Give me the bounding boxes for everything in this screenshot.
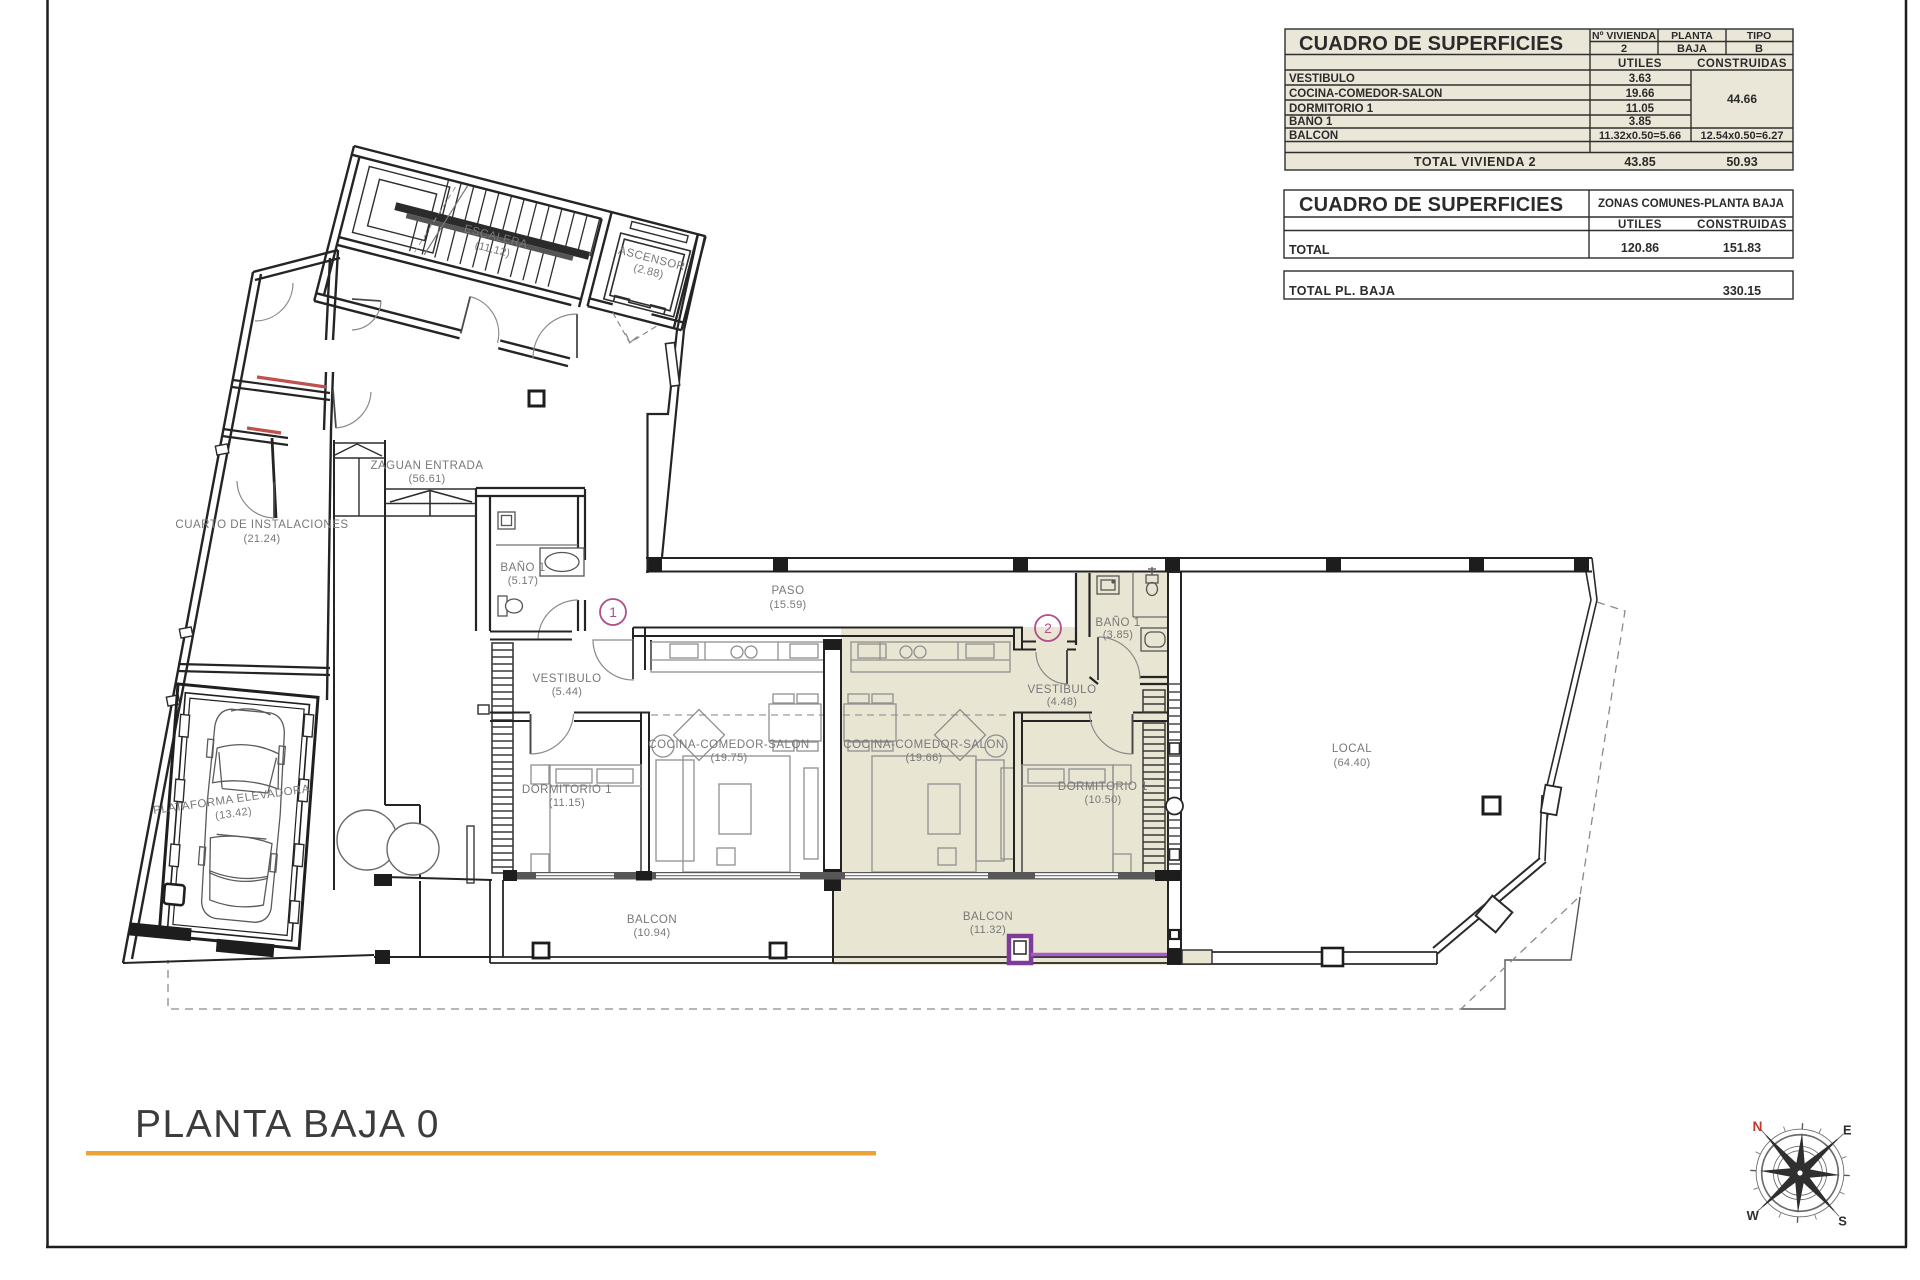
svg-text:(11.32): (11.32): [970, 924, 1006, 936]
svg-text:TOTAL VIVIENDA 2: TOTAL VIVIENDA 2: [1414, 155, 1536, 169]
svg-text:PLANTA: PLANTA: [1671, 30, 1713, 42]
svg-text:44.66: 44.66: [1727, 92, 1757, 106]
svg-text:LOCAL: LOCAL: [1332, 743, 1372, 755]
svg-text:BAÑO 1: BAÑO 1: [500, 561, 545, 574]
svg-text:ZAGUAN ENTRADA: ZAGUAN ENTRADA: [370, 460, 483, 472]
svg-text:43.85: 43.85: [1624, 155, 1655, 169]
svg-text:N: N: [1752, 1119, 1762, 1134]
svg-text:(21.24): (21.24): [244, 533, 281, 545]
svg-text:12.54x0.50=6.27: 12.54x0.50=6.27: [1701, 130, 1784, 142]
svg-text:3.85: 3.85: [1629, 116, 1652, 128]
svg-text:TOTAL: TOTAL: [1289, 243, 1330, 257]
svg-text:(15.59): (15.59): [770, 599, 807, 611]
svg-text:BAÑO 1: BAÑO 1: [1095, 616, 1140, 629]
svg-text:COCINA-COMEDOR-SALON: COCINA-COMEDOR-SALON: [1289, 88, 1442, 100]
svg-text:(19.66): (19.66): [906, 752, 943, 764]
svg-text:DORMITORIO 1: DORMITORIO 1: [1058, 781, 1148, 793]
svg-text:BALCON: BALCON: [627, 914, 677, 926]
svg-text:(5.17): (5.17): [508, 575, 539, 587]
svg-text:VESTIBULO: VESTIBULO: [532, 673, 601, 685]
svg-text:11.05: 11.05: [1626, 103, 1655, 115]
svg-text:1: 1: [609, 604, 617, 620]
svg-text:(10.50): (10.50): [1085, 794, 1122, 806]
svg-text:120.86: 120.86: [1621, 241, 1659, 255]
svg-text:BAÑO 1: BAÑO 1: [1289, 115, 1333, 128]
svg-text:CONSTRUIDAS: CONSTRUIDAS: [1697, 219, 1787, 231]
svg-text:COCINA-COMEDOR-SALON: COCINA-COMEDOR-SALON: [843, 739, 1004, 751]
svg-text:50.93: 50.93: [1726, 155, 1757, 169]
svg-text:TOTAL PL. BAJA: TOTAL PL. BAJA: [1289, 284, 1395, 298]
svg-text:BALCON: BALCON: [963, 911, 1013, 923]
svg-text:2: 2: [1621, 43, 1627, 55]
svg-text:DORMITORIO 1: DORMITORIO 1: [1289, 103, 1374, 115]
svg-text:CUADRO DE SUPERFICIES: CUADRO DE SUPERFICIES: [1299, 33, 1563, 55]
svg-text:CUARTO DE INSTALACIONES: CUARTO DE INSTALACIONES: [175, 519, 348, 531]
svg-text:11.32x0.50=5.66: 11.32x0.50=5.66: [1599, 130, 1681, 142]
svg-text:(64.40): (64.40): [1334, 757, 1371, 769]
svg-text:UTILES: UTILES: [1618, 58, 1662, 70]
svg-text:BAJA: BAJA: [1677, 43, 1707, 55]
svg-text:330.15: 330.15: [1723, 284, 1761, 298]
svg-text:PASO: PASO: [771, 585, 804, 597]
svg-text:B: B: [1755, 43, 1763, 55]
svg-text:DORMITORIO 1: DORMITORIO 1: [522, 784, 612, 796]
svg-text:TIPO: TIPO: [1747, 30, 1772, 42]
svg-text:ZONAS COMUNES-PLANTA BAJA: ZONAS COMUNES-PLANTA BAJA: [1598, 198, 1784, 210]
svg-text:(10.94): (10.94): [634, 927, 671, 939]
svg-text:2: 2: [1044, 620, 1052, 636]
svg-text:(11.15): (11.15): [549, 797, 585, 809]
svg-text:VESTIBULO: VESTIBULO: [1027, 684, 1096, 696]
svg-text:(5.44): (5.44): [552, 686, 583, 698]
svg-text:Nº VIVIENDA: Nº VIVIENDA: [1592, 30, 1656, 42]
svg-text:3.63: 3.63: [1629, 73, 1651, 85]
svg-text:(4.48): (4.48): [1047, 696, 1078, 708]
svg-text:(3.85): (3.85): [1103, 629, 1134, 641]
svg-text:S: S: [1838, 1213, 1847, 1228]
svg-text:PLANTA BAJA 0: PLANTA BAJA 0: [135, 1103, 440, 1146]
svg-text:(19.75): (19.75): [711, 752, 748, 764]
svg-text:CUADRO DE SUPERFICIES: CUADRO DE SUPERFICIES: [1299, 194, 1563, 216]
svg-text:BALCON: BALCON: [1289, 130, 1338, 142]
svg-text:19.66: 19.66: [1626, 88, 1655, 100]
svg-text:CONSTRUIDAS: CONSTRUIDAS: [1697, 58, 1787, 70]
svg-text:W: W: [1747, 1208, 1760, 1223]
svg-text:VESTIBULO: VESTIBULO: [1289, 73, 1355, 85]
svg-text:COCINA-COMEDOR-SALON: COCINA-COMEDOR-SALON: [648, 739, 809, 751]
svg-text:(56.61): (56.61): [409, 473, 446, 485]
svg-text:UTILES: UTILES: [1618, 219, 1662, 231]
svg-text:151.83: 151.83: [1723, 241, 1761, 255]
svg-text:E: E: [1843, 1123, 1852, 1138]
